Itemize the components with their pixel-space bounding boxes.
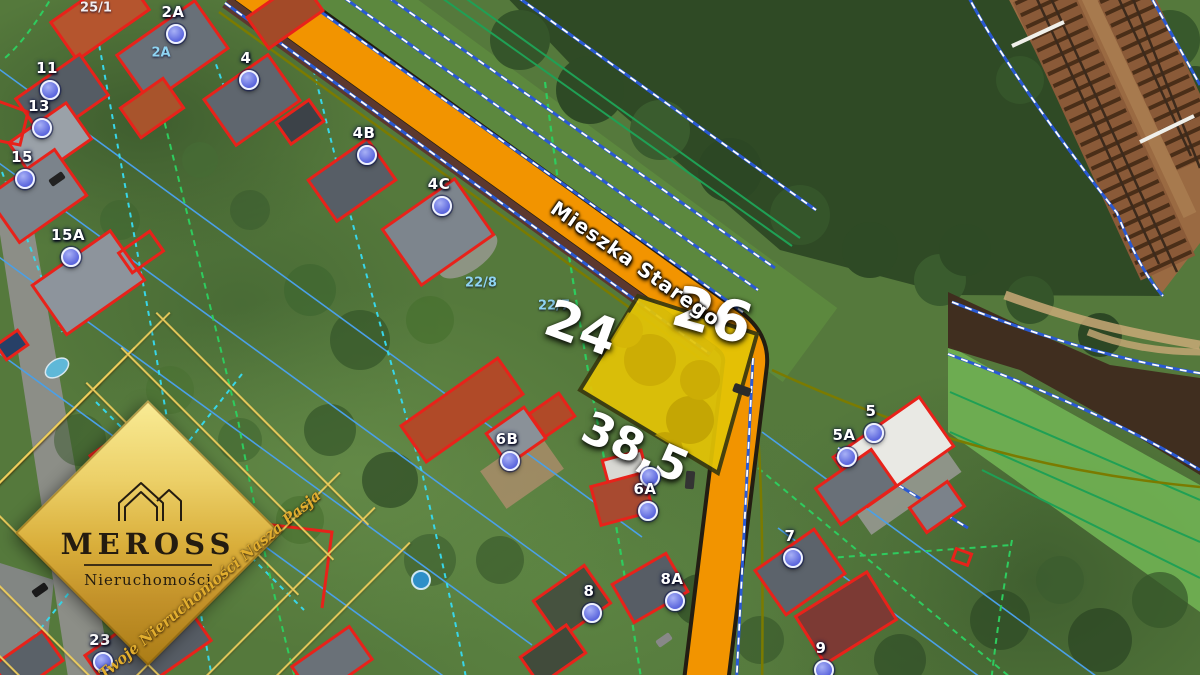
brand-rule (84, 564, 212, 566)
house-roof-icon (109, 477, 187, 523)
car (685, 471, 696, 490)
car (655, 632, 673, 648)
logo-content: MEROSS Nieruchomości (54, 439, 242, 627)
aerial-map: 25/12A22/822/721/23A 242638,5 Mieszka St… (0, 0, 1200, 675)
pool-round (412, 571, 430, 589)
brand-name: MEROSS (61, 527, 236, 561)
